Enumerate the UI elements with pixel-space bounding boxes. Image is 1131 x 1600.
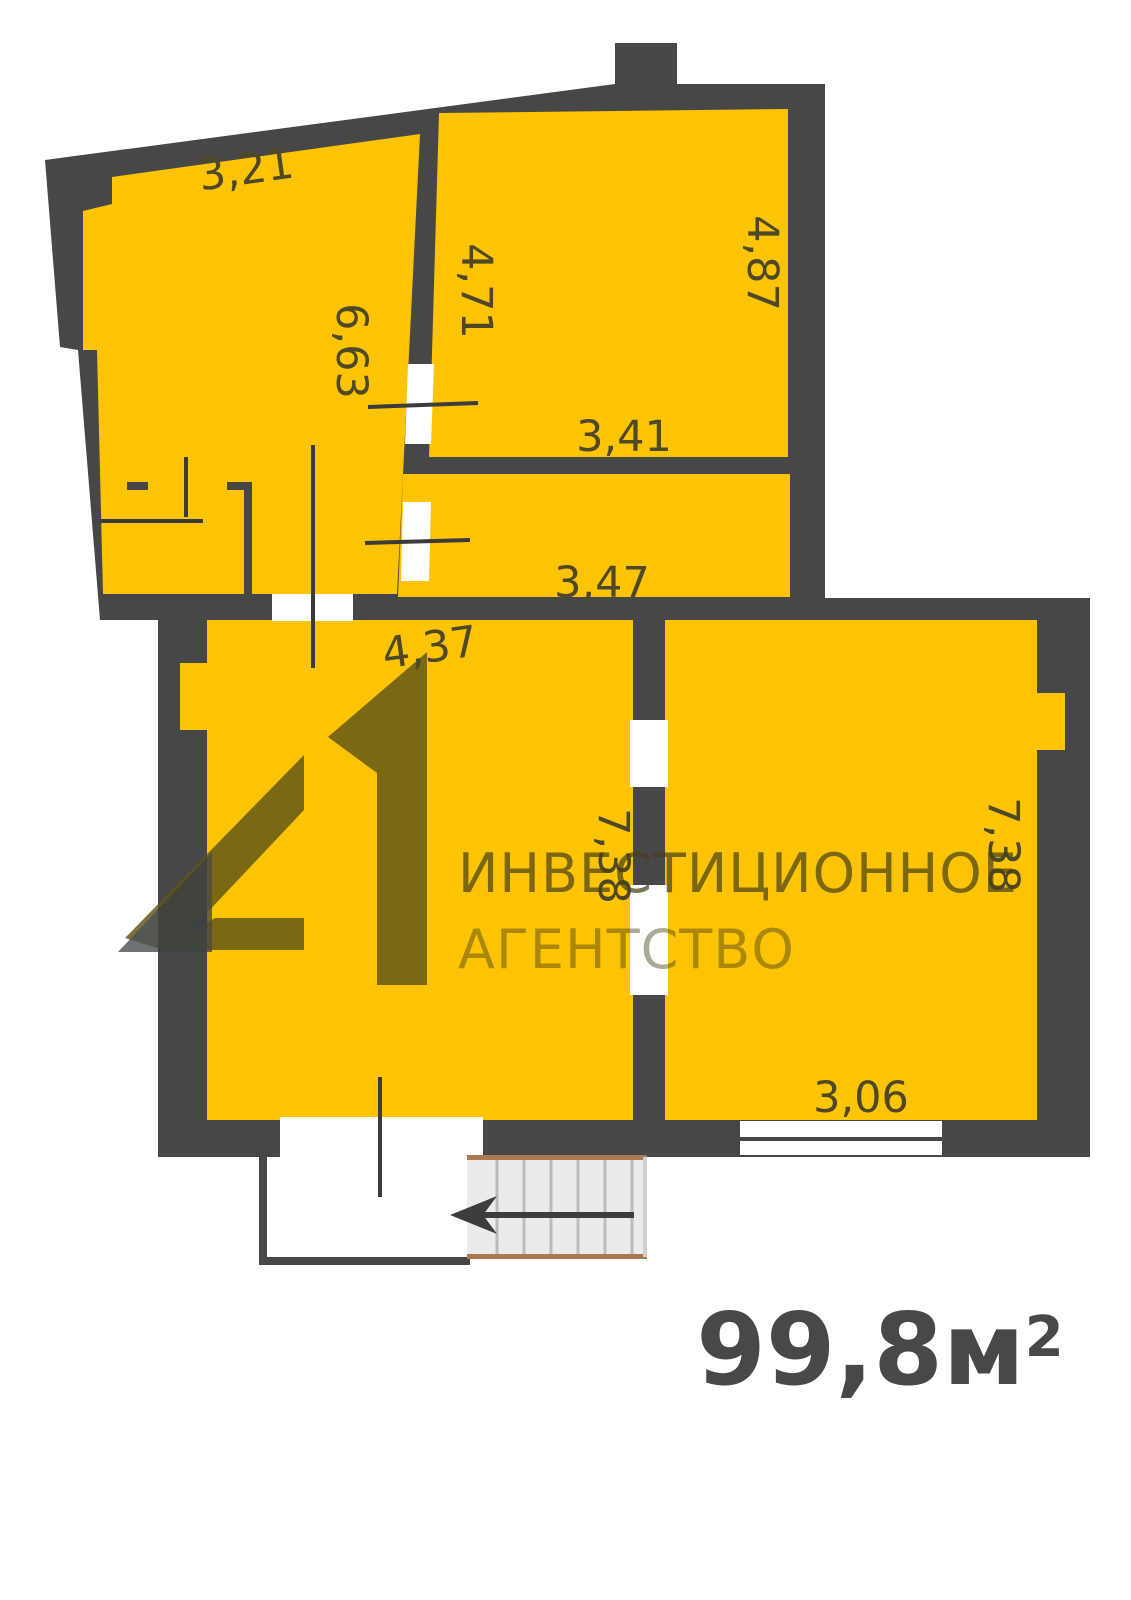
door-opening-partition-1	[630, 720, 668, 787]
total-area-superscript: 2	[1025, 1305, 1064, 1370]
dimension-label-3-06: 3,06	[813, 1073, 909, 1123]
window-bottom-mullion	[740, 1137, 942, 1141]
dimension-label-6-63: 6,63	[326, 303, 376, 399]
porch-wall-bottom	[259, 1257, 470, 1265]
stairs-right-edge	[643, 1157, 647, 1257]
porch	[259, 1157, 470, 1265]
total-area-label: 99,8м2	[660, 1300, 1100, 1400]
dimension-label-4-71: 4,71	[451, 243, 501, 339]
floor-plan: 3,21 4,71 6,63 4,87 3,41 3,47 4,37 7,38 …	[0, 0, 1131, 1600]
dimension-label-3-41: 3,41	[576, 412, 672, 462]
stairs-edge-top	[467, 1155, 647, 1160]
dimension-label-3-47: 3,47	[554, 558, 650, 608]
staircase	[467, 1155, 647, 1259]
watermark-text-line2: АГЕНТСТВО	[458, 918, 795, 981]
porch-wall-left	[259, 1157, 267, 1264]
total-area-value: 99,8м	[696, 1291, 1024, 1408]
stairs-body	[467, 1157, 647, 1258]
watermark-text-line1: ИНВЕСТИЦИОННОЕ	[458, 842, 1018, 905]
stairs-edge-bottom	[467, 1254, 647, 1259]
dimension-label-4-87: 4,87	[737, 215, 787, 311]
